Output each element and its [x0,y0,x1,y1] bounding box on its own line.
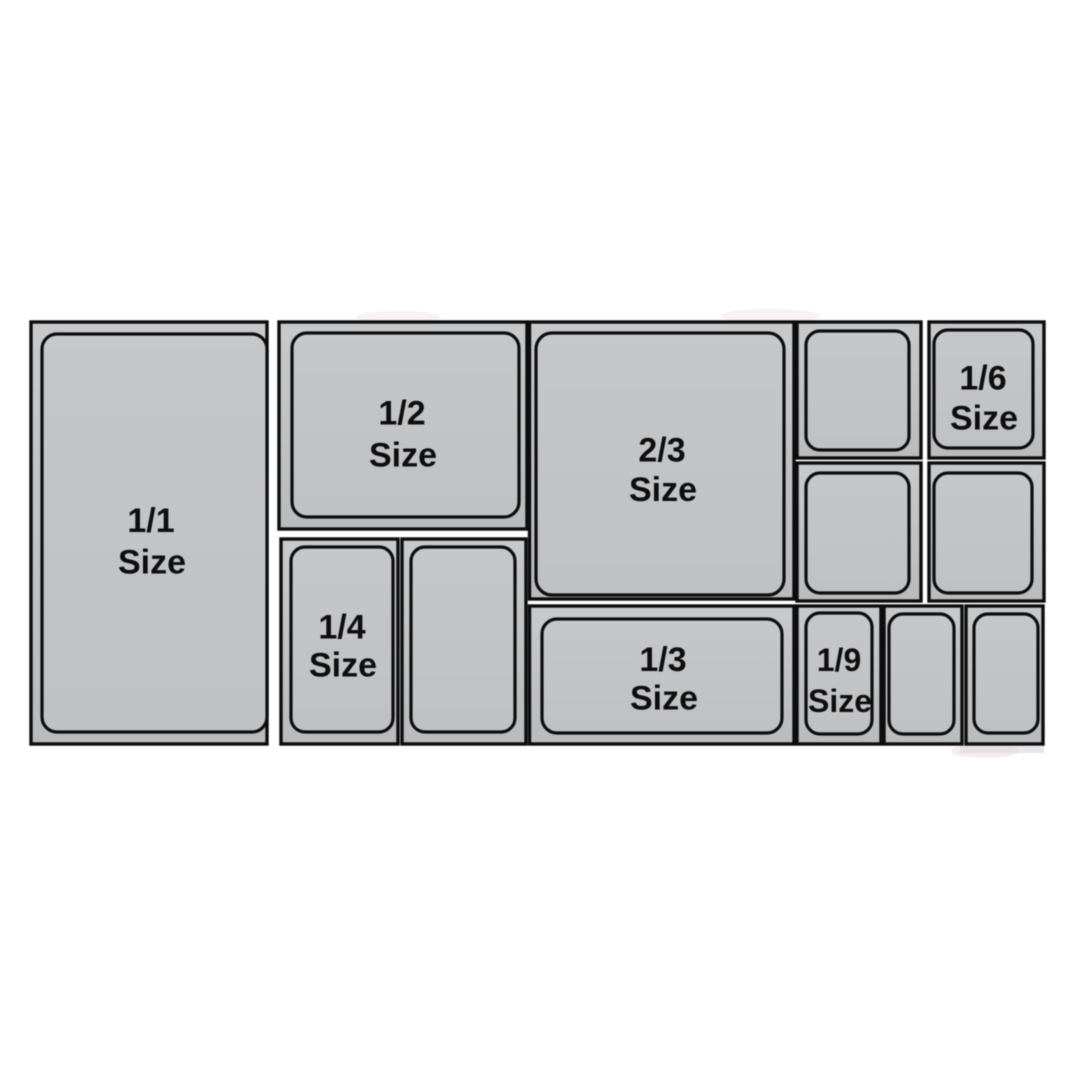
svg-text:2/3: 2/3 [638,432,685,470]
svg-text:1/1: 1/1 [127,502,174,540]
svg-text:Size: Size [118,544,186,582]
svg-text:1/3: 1/3 [639,641,686,679]
svg-text:1/6: 1/6 [959,360,1006,398]
svg-text:Size: Size [950,400,1018,438]
svg-text:Size: Size [808,683,872,719]
svg-text:1/4: 1/4 [318,609,365,647]
svg-text:1/2: 1/2 [378,395,425,433]
svg-text:Size: Size [369,437,437,475]
svg-text:Size: Size [630,680,698,718]
svg-text:1/9: 1/9 [817,642,861,678]
svg-text:Size: Size [309,647,377,685]
svg-text:Size: Size [629,471,697,509]
